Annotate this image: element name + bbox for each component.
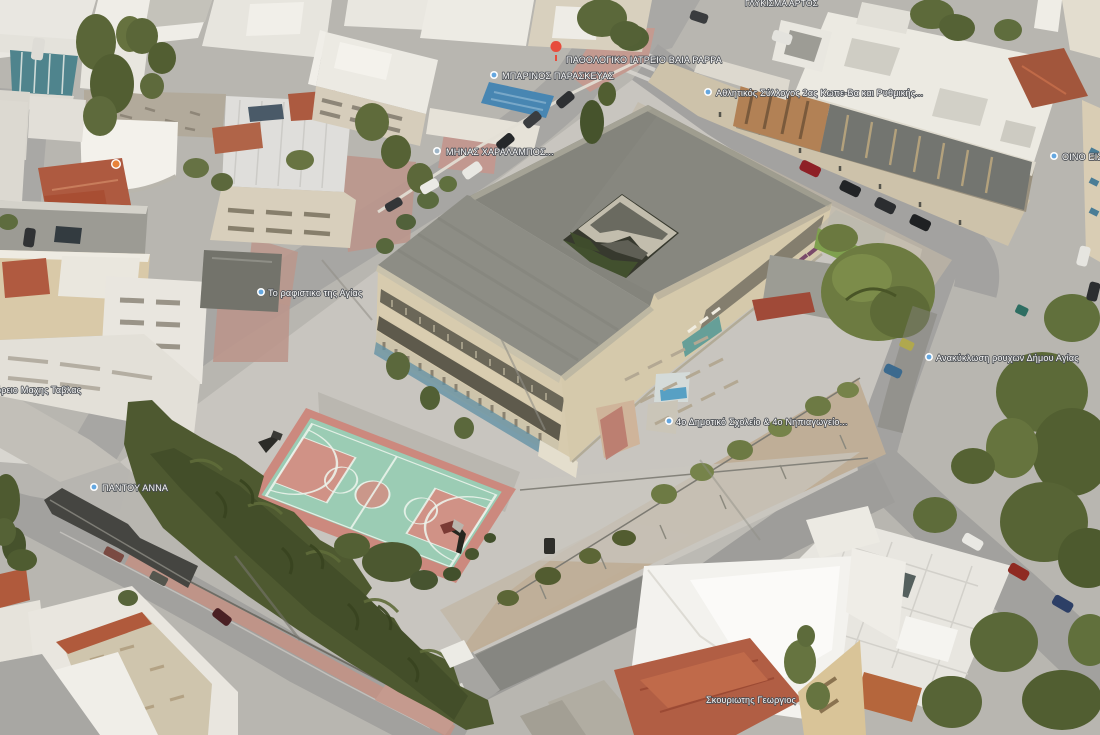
svg-text:Το ραφιστικο της Αγίας: Το ραφιστικο της Αγίας <box>268 288 363 298</box>
svg-text:Ανακύκλωση ρουχων Δήμου Αγίας: Ανακύκλωση ρουχων Δήμου Αγίας <box>936 353 1079 363</box>
svg-text:Αθλητικός Σύλλογος 2ας Κωπε-Βα: Αθλητικός Σύλλογος 2ας Κωπε-Βα και Ρυθμι… <box>716 88 923 98</box>
svg-text:ΜΗΝΑΣ ΧΑΡΑΛΑΜΠΟΣ...: ΜΗΝΑΣ ΧΑΡΑΛΑΜΠΟΣ... <box>446 147 554 157</box>
svg-text:ΟΙΝΟ ΕΙΣΑΓ: ΟΙΝΟ ΕΙΣΑΓ <box>1062 152 1100 162</box>
svg-text:ΜΠΑΡΙΝΟΣ ΠΑΡΑΣΚΕΥΑΣ: ΜΠΑΡΙΝΟΣ ΠΑΡΑΣΚΕΥΑΣ <box>502 71 614 81</box>
svg-text:όρειο Μαχης Ταβλας: όρειο Μαχης Ταβλας <box>0 385 82 395</box>
svg-text:ΠΑΘΟΛΟΓΙΚΟ ΙΑΤΡΕΙΟ ΒΑΙΑ ΡΑΡΡΑ: ΠΑΘΟΛΟΓΙΚΟ ΙΑΤΡΕΙΟ ΒΑΙΑ ΡΑΡΡΑ <box>566 55 722 65</box>
svg-text:4ο Δημοτικό Σχολείο & 4ο Νηπια: 4ο Δημοτικό Σχολείο & 4ο Νηπιαγωγείο... <box>676 417 848 427</box>
svg-text:Σκουριωτης Γεωργιος: Σκουριωτης Γεωργιος <box>706 695 797 705</box>
svg-text:ΓΛΥΚΙΣΜΑ ΑΡΤΟΣ: ΓΛΥΚΙΣΜΑ ΑΡΤΟΣ <box>745 0 818 8</box>
svg-text:ΠΑΝΤΟΥ ΑΝΝΑ: ΠΑΝΤΟΥ ΑΝΝΑ <box>102 483 168 493</box>
